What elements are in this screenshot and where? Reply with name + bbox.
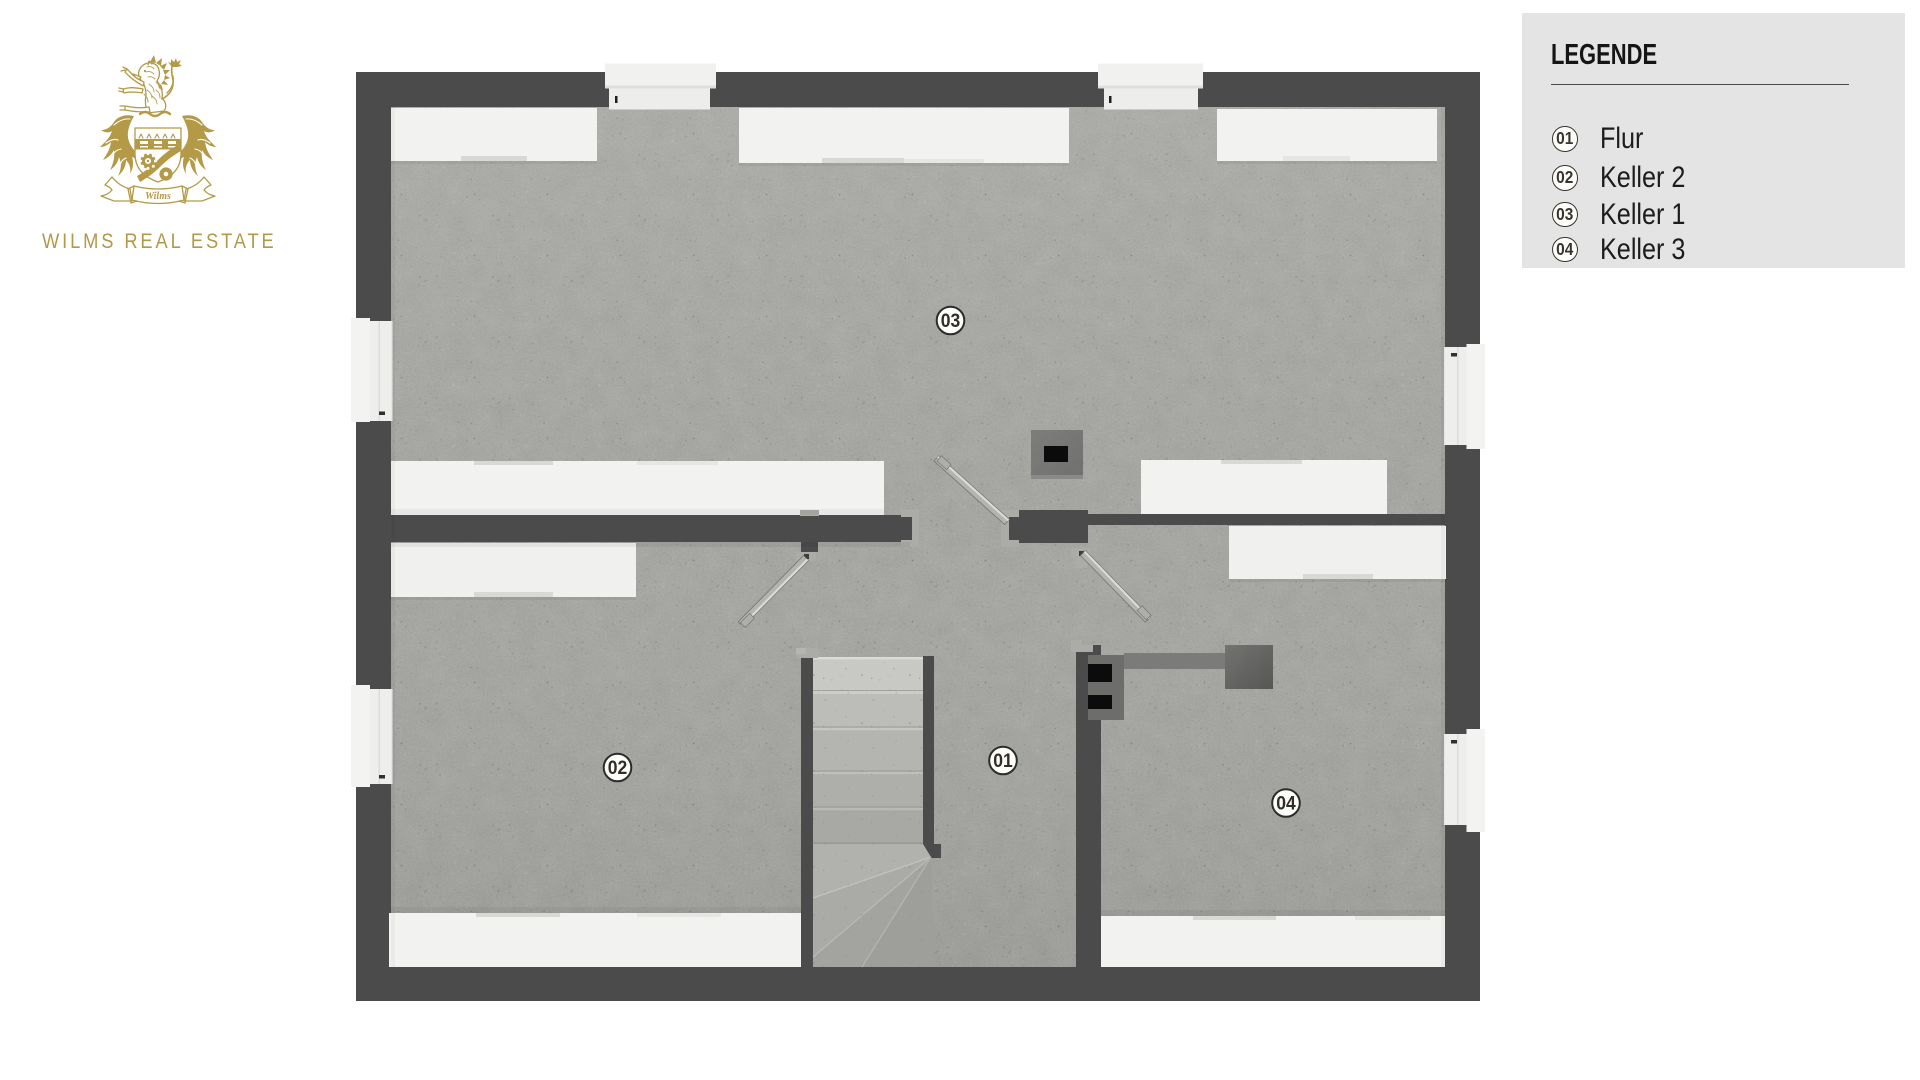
svg-text:Wilms: Wilms xyxy=(145,191,171,202)
svg-text:01: 01 xyxy=(993,751,1013,772)
svg-text:04: 04 xyxy=(1276,794,1296,815)
svg-text:02: 02 xyxy=(608,758,628,779)
svg-text:03: 03 xyxy=(941,311,961,332)
